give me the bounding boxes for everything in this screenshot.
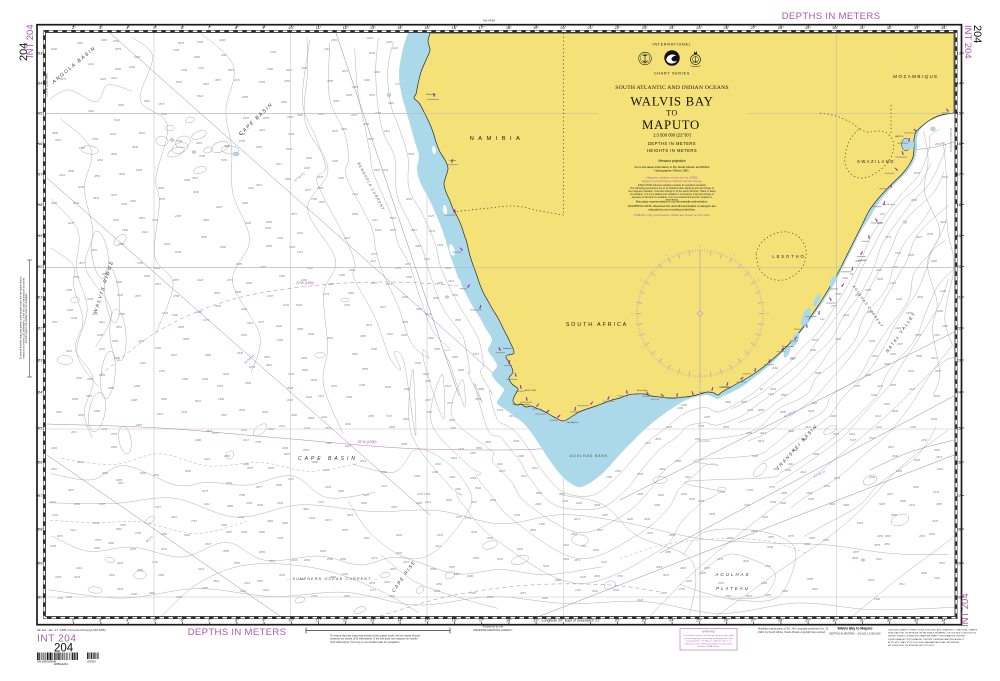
- svg-text:CHART SERIES: CHART SERIES: [654, 72, 690, 76]
- svg-text:5043: 5043: [369, 51, 375, 55]
- svg-text:144: 144: [820, 317, 825, 321]
- svg-text:3578: 3578: [135, 294, 141, 298]
- svg-text:4661: 4661: [116, 527, 122, 531]
- svg-text:1864: 1864: [97, 158, 103, 162]
- svg-text:Mossel Bay: Mossel Bay: [637, 390, 647, 392]
- svg-text:Sailing Directions Planning Gu: Sailing Directions Planning Guides for i…: [684, 642, 733, 645]
- svg-text:3674: 3674: [366, 323, 372, 327]
- svg-text:4267: 4267: [499, 469, 505, 473]
- svg-text:2501: 2501: [717, 581, 724, 585]
- svg-text:4951: 4951: [286, 68, 292, 72]
- svg-text:4052: 4052: [144, 99, 150, 103]
- svg-text:3352: 3352: [487, 536, 493, 540]
- svg-text:3756: 3756: [277, 236, 283, 240]
- svg-text:3758: 3758: [239, 139, 245, 143]
- svg-text:20°: 20°: [38, 265, 44, 269]
- svg-text:2595: 2595: [424, 379, 431, 383]
- svg-text:2718: 2718: [158, 369, 165, 373]
- svg-text:17°: 17°: [479, 618, 485, 622]
- svg-text:4362: 4362: [455, 487, 461, 491]
- svg-text:28°: 28°: [957, 527, 963, 531]
- svg-text:1944: 1944: [437, 243, 443, 247]
- svg-text:16°: 16°: [38, 142, 44, 146]
- svg-text:4187: 4187: [704, 415, 710, 419]
- svg-text:5028: 5028: [223, 372, 229, 376]
- svg-text:3784: 3784: [617, 574, 623, 578]
- svg-text:4585: 4585: [333, 99, 339, 103]
- svg-text:3491: 3491: [563, 543, 569, 547]
- svg-text:4327: 4327: [887, 492, 893, 496]
- svg-text:2974: 2974: [395, 551, 402, 555]
- svg-text:2454: 2454: [435, 582, 442, 586]
- svg-text:MAPUTO: MAPUTO: [642, 118, 700, 132]
- svg-text:5116: 5116: [934, 576, 940, 580]
- svg-text:2649: 2649: [92, 521, 99, 525]
- svg-text:4979: 4979: [115, 47, 121, 51]
- svg-text:5152: 5152: [221, 158, 227, 162]
- svg-text:3184: 3184: [87, 297, 93, 301]
- svg-text:3042: 3042: [658, 493, 664, 497]
- svg-text:3842: 3842: [161, 112, 167, 116]
- svg-text:Longitude 20° East of Greenwic: Longitude 20° East of Greenwich 21°: [541, 618, 601, 622]
- svg-text:1994, by South Africa. South A: 1994, by South Africa. South African cop…: [758, 630, 826, 634]
- svg-text:2905: 2905: [111, 339, 118, 343]
- svg-text:INT204: INT204: [87, 660, 96, 664]
- svg-text:2373: 2373: [428, 229, 435, 233]
- svg-text:4154: 4154: [747, 408, 753, 412]
- svg-text:3°: 3°: [99, 25, 103, 30]
- svg-text:2772: 2772: [197, 66, 204, 70]
- svg-text:3880: 3880: [259, 530, 265, 534]
- svg-text:4575: 4575: [853, 550, 859, 554]
- svg-text:4551: 4551: [116, 325, 122, 329]
- svg-text:2443: 2443: [324, 485, 331, 489]
- svg-text:4524: 4524: [936, 455, 942, 459]
- svg-text:(Continued on Chart 61): (Continued on Chart 61): [950, 128, 953, 152]
- svg-text:5189: 5189: [871, 393, 877, 397]
- svg-text:5014: 5014: [390, 216, 396, 220]
- svg-text:3383: 3383: [352, 85, 358, 89]
- svg-text:1935: 1935: [517, 547, 523, 551]
- svg-text:DEFENSE MAPPING AGENCY: DEFENSE MAPPING AGENCY: [473, 628, 512, 632]
- svg-text:3055: 3055: [765, 593, 771, 597]
- svg-text:CAPE BASIN: CAPE BASIN: [298, 456, 358, 462]
- svg-text:16°: 16°: [452, 618, 458, 622]
- svg-text:2173: 2173: [322, 292, 329, 296]
- svg-text:2895: 2895: [433, 589, 440, 593]
- svg-text:25°: 25°: [957, 426, 963, 430]
- svg-text:4047: 4047: [68, 488, 74, 492]
- svg-text:4124: 4124: [386, 40, 392, 44]
- svg-text:99: 99: [850, 272, 853, 276]
- svg-text:16°: 16°: [957, 142, 963, 146]
- svg-text:14°: 14°: [38, 81, 44, 85]
- svg-text:2694: 2694: [303, 558, 310, 562]
- svg-text:5187: 5187: [99, 502, 105, 506]
- svg-text:2340: 2340: [636, 598, 643, 602]
- svg-text:2769: 2769: [136, 261, 143, 265]
- svg-text:4th Ed., Jan. 27, 1985 (Correc: 4th Ed., Jan. 27, 1985 (Corrected throug…: [37, 628, 106, 632]
- svg-text:3947: 3947: [374, 168, 380, 172]
- svg-text:3814: 3814: [269, 559, 275, 563]
- svg-text:3329: 3329: [100, 77, 106, 81]
- svg-text:3628: 3628: [111, 152, 117, 156]
- svg-text:4423: 4423: [849, 432, 855, 436]
- svg-text:4008: 4008: [223, 549, 229, 553]
- svg-text:2960: 2960: [93, 409, 100, 413]
- svg-text:3934: 3934: [449, 418, 455, 422]
- svg-text:3941: 3941: [931, 356, 937, 360]
- svg-text:2341: 2341: [767, 392, 774, 396]
- svg-text:4058: 4058: [346, 93, 352, 97]
- svg-text:3440: 3440: [51, 47, 57, 51]
- svg-text:3504: 3504: [213, 579, 219, 583]
- svg-text:DURBAN: DURBAN: [858, 259, 867, 262]
- svg-text:4072: 4072: [256, 183, 262, 187]
- svg-text:2496: 2496: [760, 581, 767, 585]
- svg-text:3727: 3727: [258, 320, 264, 324]
- svg-text:1965: 1965: [307, 266, 313, 270]
- svg-text:3801: 3801: [139, 216, 145, 220]
- svg-text:2662: 2662: [110, 445, 117, 449]
- svg-text:5150: 5150: [473, 556, 479, 560]
- svg-text:3632: 3632: [185, 469, 191, 473]
- svg-text:3586: 3586: [430, 567, 436, 571]
- svg-text:15°: 15°: [424, 618, 430, 622]
- svg-text:204: 204: [18, 43, 30, 61]
- svg-text:2673: 2673: [73, 575, 80, 579]
- svg-text:4938: 4938: [914, 458, 920, 462]
- svg-text:2676: 2676: [331, 129, 338, 133]
- svg-text:2547: 2547: [644, 441, 651, 445]
- svg-text:3654: 3654: [655, 437, 661, 441]
- svg-text:MOZAMBIQUE: MOZAMBIQUE: [893, 74, 938, 79]
- svg-text:2733: 2733: [161, 311, 168, 315]
- svg-text:3009: 3009: [158, 186, 164, 190]
- svg-text:2181: 2181: [743, 503, 750, 507]
- svg-text:4085: 4085: [87, 377, 93, 381]
- svg-text:4225: 4225: [437, 533, 443, 537]
- svg-text:24°: 24°: [957, 390, 963, 394]
- svg-text:2022: 2022: [592, 548, 599, 552]
- svg-text:4452: 4452: [288, 372, 294, 376]
- svg-text:4557: 4557: [520, 591, 526, 595]
- svg-text:4919: 4919: [56, 410, 62, 414]
- svg-text:2932: 2932: [383, 580, 390, 584]
- svg-text:4088: 4088: [758, 408, 764, 412]
- svg-text:15°: 15°: [38, 111, 44, 115]
- svg-text:2219: 2219: [296, 231, 303, 235]
- svg-text:DEPTHS IN METERS: DEPTHS IN METERS: [188, 627, 287, 638]
- svg-text:3546: 3546: [475, 486, 481, 490]
- svg-text:2300: 2300: [76, 460, 83, 464]
- svg-text:4649: 4649: [137, 568, 143, 572]
- svg-text:3667: 3667: [885, 534, 891, 538]
- svg-text:3309: 3309: [108, 541, 114, 545]
- svg-text:ATTN: MCC, MAIL STOP D-44, 460: ATTN: MCC, MAIL STOP D-44, 4600 SANGAMOR…: [888, 641, 960, 644]
- svg-text:3803: 3803: [656, 565, 662, 569]
- svg-text:2611: 2611: [684, 475, 691, 479]
- svg-text:3942: 3942: [743, 559, 749, 563]
- svg-text:3828: 3828: [203, 218, 209, 222]
- svg-text:3291: 3291: [497, 462, 503, 466]
- svg-text:29°: 29°: [805, 618, 811, 622]
- svg-text:5295: 5295: [543, 564, 549, 568]
- svg-text:10°: 10°: [288, 25, 294, 30]
- svg-text:4083: 4083: [594, 503, 600, 507]
- svg-text:18°: 18°: [38, 203, 44, 207]
- svg-text:18°: 18°: [957, 203, 963, 207]
- svg-text:2995: 2995: [300, 356, 307, 360]
- svg-text:1953: 1953: [514, 513, 520, 517]
- svg-text:2936: 2936: [926, 232, 933, 236]
- svg-text:2168: 2168: [276, 338, 283, 342]
- svg-text:4112: 4112: [221, 53, 227, 57]
- svg-text:3791: 3791: [725, 594, 731, 598]
- svg-text:2857: 2857: [233, 561, 240, 565]
- svg-text:7°: 7°: [208, 25, 212, 30]
- svg-text:2530: 2530: [688, 497, 695, 501]
- svg-text:4496: 4496: [518, 454, 524, 458]
- svg-text:DEPTHS IN METERS – SCALE 1:3,5: DEPTHS IN METERS – SCALE 1:3,500,000: [829, 632, 881, 636]
- svg-text:4714: 4714: [318, 500, 324, 504]
- svg-text:3167: 3167: [120, 523, 126, 527]
- svg-text:18°: 18°: [506, 25, 512, 30]
- svg-text:3486: 3486: [746, 431, 752, 435]
- svg-text:13°: 13°: [957, 51, 963, 55]
- svg-text:3748: 3748: [562, 499, 568, 503]
- svg-text:3667: 3667: [812, 587, 818, 591]
- svg-text:26°: 26°: [957, 460, 963, 464]
- svg-text:4046: 4046: [282, 446, 288, 450]
- svg-text:2568: 2568: [370, 347, 377, 351]
- svg-text:2990: 2990: [809, 348, 816, 352]
- svg-text:4036: 4036: [877, 277, 883, 281]
- svg-text:4939: 4939: [563, 557, 569, 561]
- svg-text:and this copy is not certified: and this copy is not certified safe for …: [25, 292, 28, 343]
- svg-text:4890: 4890: [194, 55, 200, 59]
- svg-text:3892: 3892: [725, 400, 731, 404]
- svg-text:5137: 5137: [381, 484, 387, 488]
- svg-text:1955: 1955: [76, 376, 82, 380]
- svg-text:22°: 22°: [957, 326, 963, 330]
- svg-text:4142: 4142: [352, 192, 358, 196]
- svg-text:3269: 3269: [770, 387, 776, 391]
- svg-text:4753: 4753: [181, 68, 187, 72]
- svg-text:2356: 2356: [876, 534, 883, 538]
- svg-text:4643: 4643: [396, 533, 402, 537]
- svg-text:3047: 3047: [171, 353, 177, 357]
- svg-text:3558: 3558: [201, 235, 207, 239]
- svg-text:1850: 1850: [835, 292, 841, 296]
- svg-text:20°W (1990): 20°W (1990): [295, 281, 314, 285]
- svg-text:14°: 14°: [397, 618, 403, 622]
- svg-text:3135: 3135: [580, 575, 586, 579]
- svg-text:4239: 4239: [78, 185, 84, 189]
- svg-text:indicated by an encircling dot: indicated by an encircling dotted line.: [648, 207, 696, 211]
- svg-text:1817: 1817: [473, 352, 479, 356]
- svg-text:4083: 4083: [239, 408, 245, 412]
- svg-text:5041: 5041: [195, 399, 201, 403]
- svg-text:4360: 4360: [243, 462, 249, 466]
- svg-text:4332: 4332: [835, 337, 841, 341]
- svg-text:3810: 3810: [214, 291, 220, 295]
- svg-text:3772: 3772: [447, 401, 453, 405]
- svg-text:3125: 3125: [428, 214, 434, 218]
- svg-text:3689: 3689: [478, 387, 484, 391]
- svg-text:3146: 3146: [401, 333, 407, 337]
- svg-text:2214: 2214: [87, 62, 94, 66]
- svg-text:2°: 2°: [72, 618, 76, 622]
- svg-text:2114: 2114: [323, 47, 330, 51]
- svg-text:3995: 3995: [236, 262, 242, 266]
- svg-text:4324: 4324: [800, 470, 806, 474]
- svg-text:2°: 2°: [72, 25, 76, 30]
- svg-text:3482: 3482: [101, 38, 107, 42]
- svg-text:5220: 5220: [309, 516, 315, 520]
- svg-text:3447: 3447: [916, 235, 922, 239]
- svg-text:Walvis Bay to Maputo: Walvis Bay to Maputo: [838, 627, 873, 631]
- svg-text:4625: 4625: [268, 466, 274, 470]
- svg-text:2070: 2070: [341, 528, 348, 532]
- svg-text:25°: 25°: [696, 618, 702, 622]
- svg-text:4789: 4789: [173, 294, 179, 298]
- svg-text:3362: 3362: [348, 291, 354, 295]
- svg-text:8°: 8°: [235, 25, 239, 30]
- svg-text:9°: 9°: [262, 618, 266, 622]
- svg-text:DEPTHS IN METERS: DEPTHS IN METERS: [648, 141, 696, 146]
- svg-text:4413: 4413: [384, 129, 390, 133]
- svg-text:4553: 4553: [434, 347, 440, 351]
- svg-text:2030: 2030: [240, 307, 247, 311]
- svg-text:5197: 5197: [470, 591, 476, 595]
- svg-text:3257: 3257: [111, 193, 117, 197]
- svg-text:3°: 3°: [99, 618, 103, 622]
- svg-text:2380: 2380: [338, 273, 345, 277]
- svg-text:4451: 4451: [475, 397, 481, 401]
- svg-text:2219: 2219: [139, 361, 146, 365]
- svg-text:34°: 34°: [941, 25, 947, 30]
- svg-text:3582: 3582: [768, 535, 774, 539]
- svg-text:2458: 2458: [367, 414, 374, 418]
- svg-text:5056: 5056: [311, 378, 317, 382]
- svg-text:2659: 2659: [351, 212, 358, 216]
- svg-text:2045: 2045: [907, 253, 914, 257]
- svg-text:2887: 2887: [135, 423, 142, 427]
- svg-text:3951: 3951: [884, 542, 890, 546]
- svg-text:2110: 2110: [151, 560, 158, 564]
- svg-text:Hydrographic Offices 1981.: Hydrographic Offices 1981.: [655, 168, 690, 172]
- svg-text:1893: 1893: [937, 467, 943, 471]
- svg-text:26°: 26°: [724, 618, 730, 622]
- svg-text:5°: 5°: [153, 25, 157, 30]
- svg-text:2218: 2218: [247, 186, 254, 190]
- svg-text:2619: 2619: [593, 574, 600, 578]
- svg-text:4681: 4681: [196, 141, 202, 145]
- svg-text:1990: 1990: [218, 397, 224, 401]
- svg-text:3668: 3668: [205, 353, 211, 357]
- svg-text:TO: TO: [666, 109, 678, 118]
- svg-text:4829: 4829: [193, 190, 199, 194]
- svg-text:3251: 3251: [110, 132, 116, 136]
- svg-text:180: 180: [880, 212, 885, 216]
- svg-text:27°: 27°: [751, 618, 757, 622]
- svg-text:3604: 3604: [834, 476, 840, 480]
- svg-text:UNITED STATES, IN WRITING: MAR: UNITED STATES, IN WRITING: MARITIME SAFE…: [888, 635, 966, 638]
- svg-text:2067: 2067: [225, 530, 232, 534]
- svg-text:2686: 2686: [806, 577, 813, 581]
- svg-text:3572: 3572: [369, 93, 375, 97]
- svg-text:2481: 2481: [841, 276, 848, 280]
- svg-text:3154: 3154: [241, 333, 247, 337]
- svg-text:2780: 2780: [362, 122, 369, 126]
- svg-text:4506: 4506: [245, 381, 251, 385]
- svg-text:1839: 1839: [931, 417, 937, 421]
- svg-text:3945: 3945: [361, 501, 367, 505]
- svg-text:4089: 4089: [178, 325, 184, 329]
- svg-text:17°: 17°: [957, 172, 963, 176]
- svg-text:20°: 20°: [957, 265, 963, 269]
- svg-text:3134: 3134: [277, 536, 283, 540]
- svg-text:4841: 4841: [352, 352, 358, 356]
- svg-text:4916: 4916: [872, 354, 878, 358]
- svg-text:→ SOUTHERN OCEAN CURRENT →: → SOUTHERN OCEAN CURRENT →: [286, 577, 379, 581]
- svg-text:3113: 3113: [934, 333, 940, 337]
- svg-text:5018: 5018: [758, 439, 764, 443]
- svg-text:4159: 4159: [55, 575, 61, 579]
- svg-text:4369: 4369: [267, 519, 273, 523]
- svg-text:2955: 2955: [726, 536, 733, 540]
- svg-text:4640: 4640: [911, 198, 917, 202]
- svg-text:4963: 4963: [242, 201, 248, 205]
- svg-text:3750: 3750: [255, 440, 261, 444]
- svg-text:4507: 4507: [425, 398, 431, 402]
- svg-text:4°: 4°: [126, 25, 130, 30]
- svg-text:3090: 3090: [102, 471, 108, 475]
- svg-text:2350: 2350: [822, 538, 829, 542]
- svg-text:3643: 3643: [929, 532, 935, 536]
- svg-text:2672: 2672: [389, 228, 396, 232]
- svg-text:3295: 3295: [450, 426, 456, 430]
- svg-text:4853: 4853: [709, 512, 715, 516]
- svg-text:4566: 4566: [891, 513, 897, 517]
- svg-text:5037: 5037: [914, 171, 920, 175]
- svg-text:5152: 5152: [452, 293, 458, 297]
- svg-text:2980: 2980: [781, 589, 788, 593]
- svg-text:3377: 3377: [305, 188, 311, 192]
- svg-text:NM 44/85: NM 44/85: [483, 19, 496, 23]
- svg-text:4053: 4053: [395, 266, 401, 270]
- svg-text:33°: 33°: [914, 618, 920, 622]
- svg-text:2753: 2753: [72, 275, 79, 279]
- svg-text:19°: 19°: [957, 234, 963, 238]
- svg-text:24°: 24°: [669, 25, 675, 30]
- svg-text:5273: 5273: [212, 431, 218, 435]
- svg-text:4095: 4095: [723, 425, 729, 429]
- svg-text:1:3 500 000 (22°30'): 1:3 500 000 (22°30'): [653, 133, 691, 138]
- svg-text:3809: 3809: [458, 368, 464, 372]
- svg-text:5201: 5201: [176, 80, 182, 84]
- svg-text:3405: 3405: [184, 533, 190, 537]
- svg-text:1882: 1882: [119, 312, 125, 316]
- svg-text:4877: 4877: [291, 212, 297, 216]
- svg-text:3662: 3662: [303, 507, 309, 511]
- svg-text:4968: 4968: [423, 372, 429, 376]
- svg-text:2891: 2891: [389, 567, 396, 571]
- svg-text:4071: 4071: [71, 430, 77, 434]
- svg-text:30°: 30°: [832, 25, 838, 30]
- svg-text:4611: 4611: [99, 320, 105, 324]
